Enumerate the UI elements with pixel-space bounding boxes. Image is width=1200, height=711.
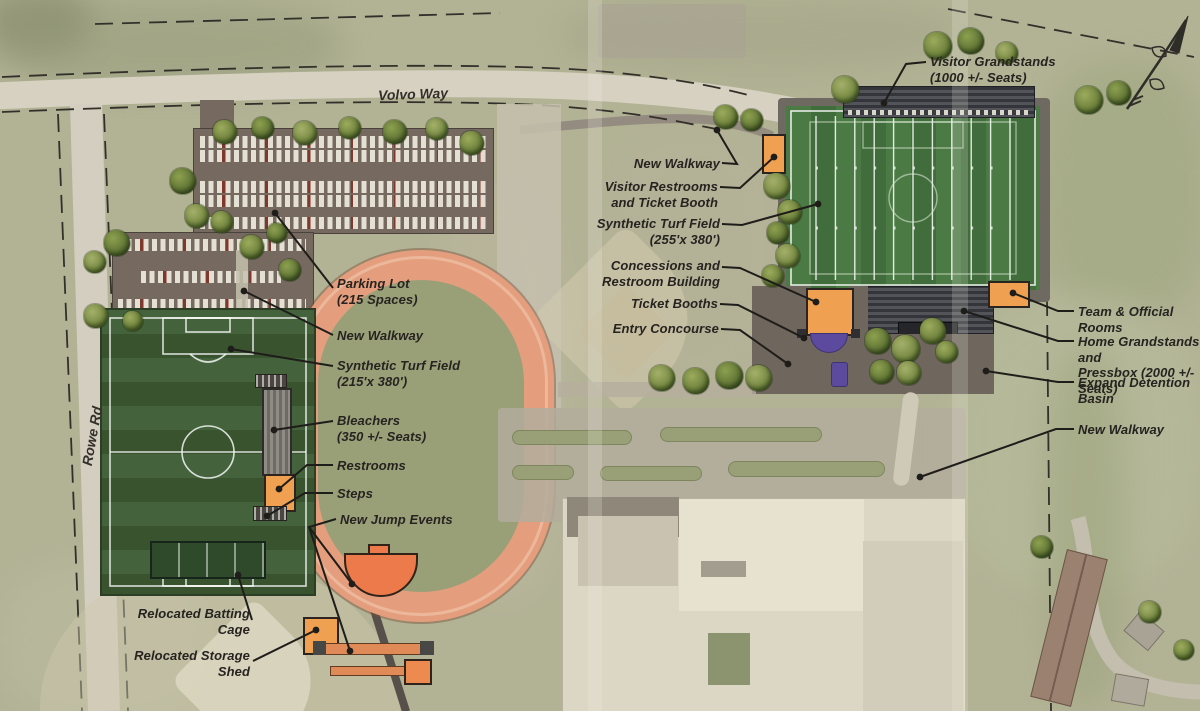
label-restrooms: Restrooms <box>337 458 406 474</box>
label-visitor-restrooms: Visitor Restrooms and Ticket Booth <box>605 179 718 210</box>
north-arrow-icon <box>1127 16 1188 109</box>
label-bleachers: Bleachers (350 +/- Seats) <box>337 413 426 444</box>
label-new-walkway-top: New Walkway <box>634 156 720 172</box>
label-parking-lot: Parking Lot (215 Spaces) <box>337 276 418 307</box>
annotation-layer <box>0 0 1200 711</box>
label-concessions: Concessions and Restroom Building <box>602 258 720 289</box>
label-batting-cage: Relocated Batting Cage <box>138 606 250 637</box>
site-plan: Volvo Way Rowe Rd Parking Lot (215 Space… <box>0 0 1200 711</box>
label-steps: Steps <box>337 486 373 502</box>
label-visitor-grandstands: Visitor Grandstands (1000 +/- Seats) <box>930 54 1056 85</box>
label-storage-shed: Relocated Storage Shed <box>134 648 250 679</box>
label-entry-concourse: Entry Concourse <box>613 321 719 337</box>
label-team-rooms: Team & Official Rooms <box>1078 304 1200 335</box>
label-new-walkway-left: New Walkway <box>337 328 423 344</box>
road-label-volvo-way: Volvo Way <box>378 85 449 103</box>
label-jump-events: New Jump Events <box>340 512 453 528</box>
label-turf-right: Synthetic Turf Field (255'x 380') <box>597 216 720 247</box>
label-ticket-booths: Ticket Booths <box>631 296 718 312</box>
label-new-walkway-right: New Walkway <box>1078 422 1164 438</box>
label-detention: Expand Detention Basin <box>1078 375 1190 406</box>
label-turf-left: Synthetic Turf Field (215'x 380') <box>337 358 460 389</box>
